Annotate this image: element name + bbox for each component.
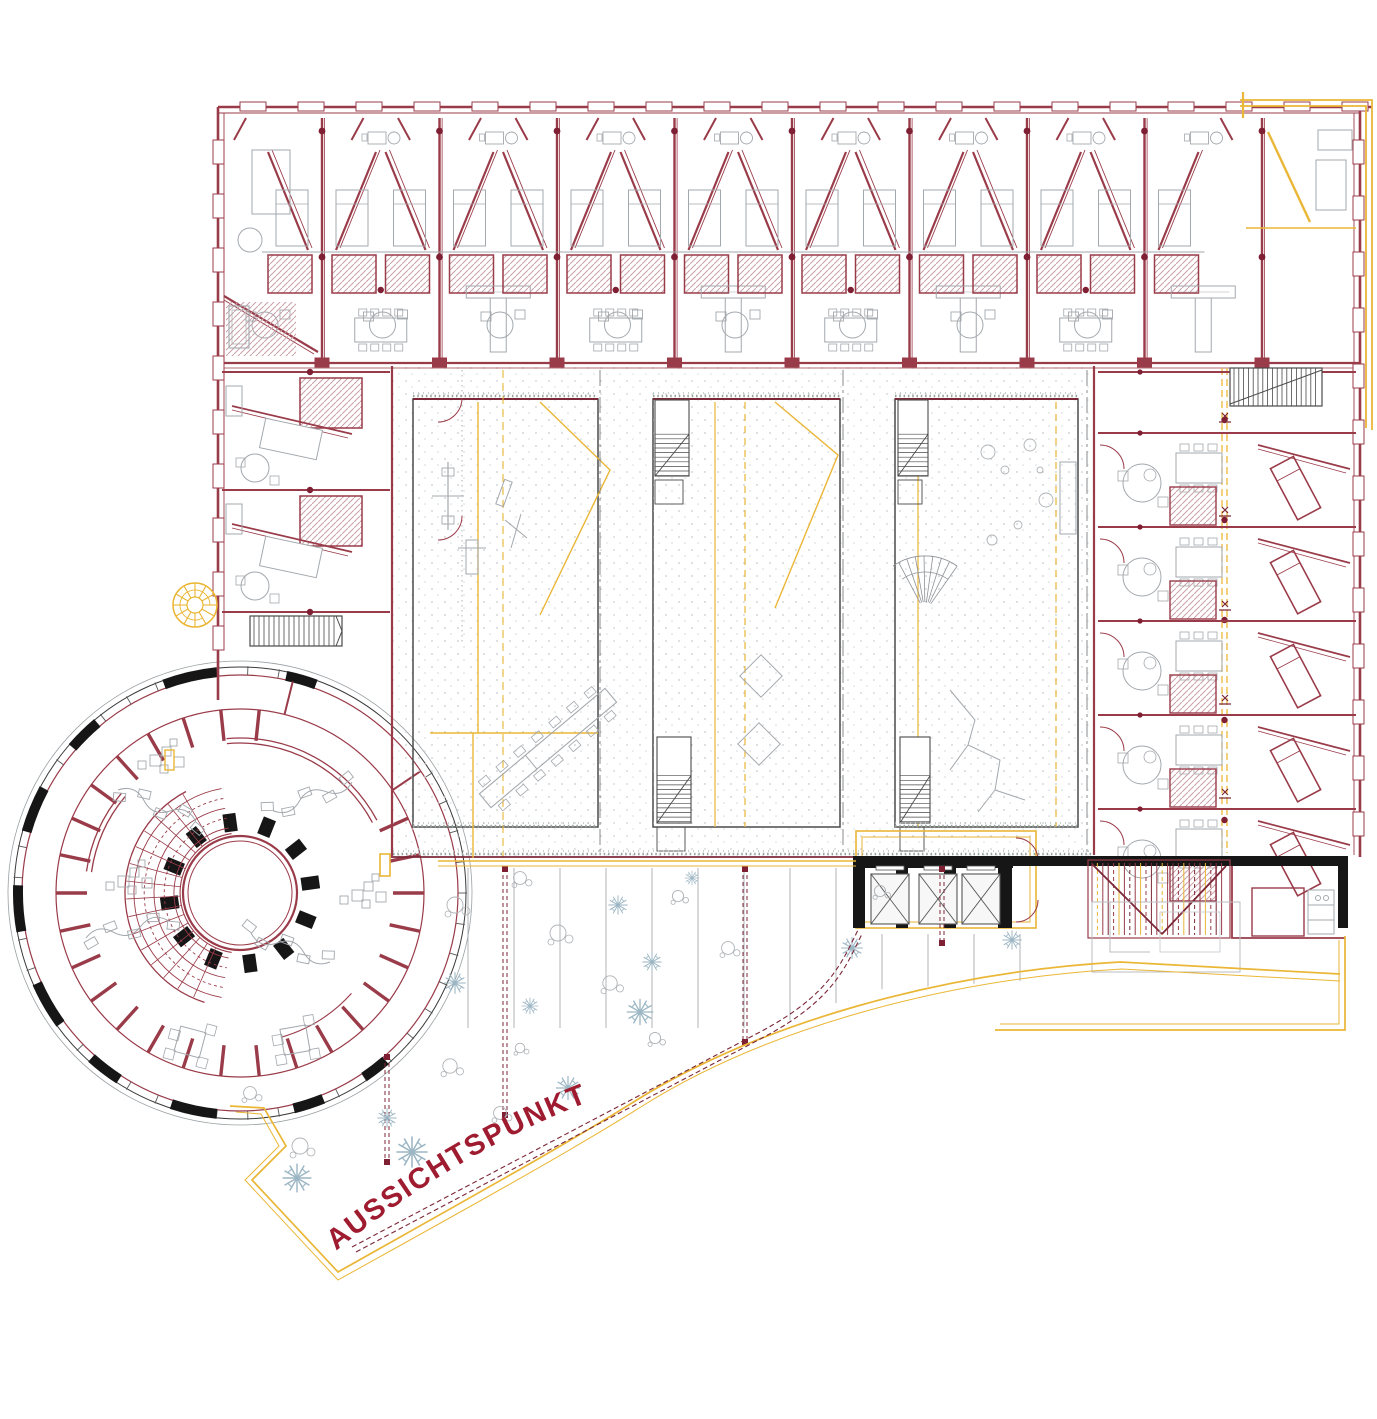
plant bbox=[608, 895, 627, 914]
terrace-frame bbox=[995, 936, 1345, 1030]
viewpoint-label-text: AUSSICHTSPUNKT bbox=[321, 1078, 593, 1256]
walkway-outer-edge bbox=[230, 962, 1340, 1272]
plant bbox=[1002, 930, 1021, 949]
stair-west bbox=[250, 616, 342, 646]
spiral-stair bbox=[125, 789, 232, 1003]
plant bbox=[627, 999, 653, 1025]
stair-northeast bbox=[1230, 368, 1322, 406]
spiral-stair-west bbox=[173, 583, 217, 627]
central-hall bbox=[393, 367, 1094, 858]
floor-plan-canvas: AUSSICHTSPUNKT bbox=[0, 0, 1377, 1419]
hall-structure-a bbox=[413, 399, 610, 827]
furniture-cluster bbox=[340, 874, 386, 908]
plant bbox=[283, 1164, 312, 1193]
plant bbox=[377, 1108, 396, 1127]
elevator-car bbox=[962, 866, 1000, 924]
viewpoint-label: AUSSICHTSPUNKT bbox=[321, 1078, 593, 1256]
top-band-floor bbox=[219, 108, 1369, 364]
plant bbox=[642, 952, 661, 971]
furniture-cluster bbox=[138, 739, 184, 773]
plant bbox=[522, 998, 539, 1015]
plant bbox=[444, 972, 466, 994]
elevator-car bbox=[919, 866, 957, 924]
plant bbox=[685, 871, 699, 885]
